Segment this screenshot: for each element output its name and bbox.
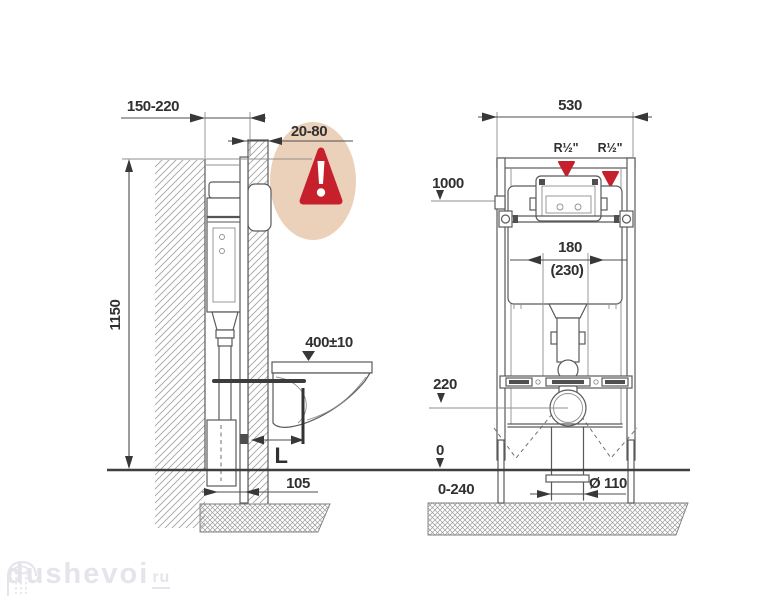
access-box-side bbox=[248, 184, 271, 231]
watermark-tld: ru bbox=[152, 569, 170, 589]
flush-pipe bbox=[549, 304, 587, 380]
dim-frame-depth-label: 105 bbox=[286, 475, 310, 492]
rail-fixing-block bbox=[240, 434, 248, 444]
side-view: 150-220 20-80 1150 400±10 L bbox=[107, 98, 372, 532]
watermark: dushevoi ru bbox=[6, 560, 170, 589]
dim-outlet-height-label: 220 bbox=[433, 376, 457, 393]
frame-leg-left bbox=[498, 440, 504, 503]
wall-hatch bbox=[155, 160, 205, 528]
dim-below-floor-label: 0-240 bbox=[438, 481, 474, 498]
water-conn-left-label: R½" bbox=[554, 141, 579, 155]
dim-offset-l-label: L bbox=[274, 443, 287, 468]
outlet-trap bbox=[550, 386, 586, 426]
dim-frame-height-label: 1150 bbox=[107, 299, 124, 330]
ground-pad-right bbox=[428, 503, 688, 535]
dim-flush-offset-label: 180 bbox=[558, 239, 582, 256]
valve-icon-left bbox=[559, 162, 574, 176]
dim-wall-depth-label: 150-220 bbox=[127, 98, 179, 115]
dim-cladding-label: 20-80 bbox=[291, 123, 327, 140]
dim-install-height-label: 1000 bbox=[432, 175, 464, 192]
cistern-side bbox=[207, 182, 243, 420]
dim-install-height: 1000 bbox=[431, 175, 505, 209]
shower-icon bbox=[6, 560, 40, 596]
dim-floor-level: 0 bbox=[436, 442, 444, 468]
installation-diagram: 150-220 20-80 1150 400±10 L bbox=[0, 0, 775, 600]
water-conn-right-label: R½" bbox=[598, 141, 623, 155]
frame-rail-side bbox=[240, 157, 248, 503]
dim-floor-level-label: 0 bbox=[436, 442, 444, 459]
dim-flush-offset-alt-label: (230) bbox=[550, 262, 583, 279]
dim-seat-height: 400±10 bbox=[302, 334, 353, 361]
valve-icon-right bbox=[603, 172, 618, 186]
dim-seat-height-label: 400±10 bbox=[305, 334, 353, 351]
ground-pad-left bbox=[200, 504, 330, 532]
toilet-bowl-side bbox=[272, 362, 372, 427]
dim-wall-depth: 150-220 bbox=[121, 98, 266, 158]
dim-drain-diameter-label: Ø 110 bbox=[589, 475, 627, 492]
frame-foot-side bbox=[207, 420, 236, 486]
flush-access-box bbox=[530, 176, 607, 221]
frame-leg-right bbox=[628, 440, 634, 503]
dim-frame-width-label: 530 bbox=[558, 97, 582, 114]
